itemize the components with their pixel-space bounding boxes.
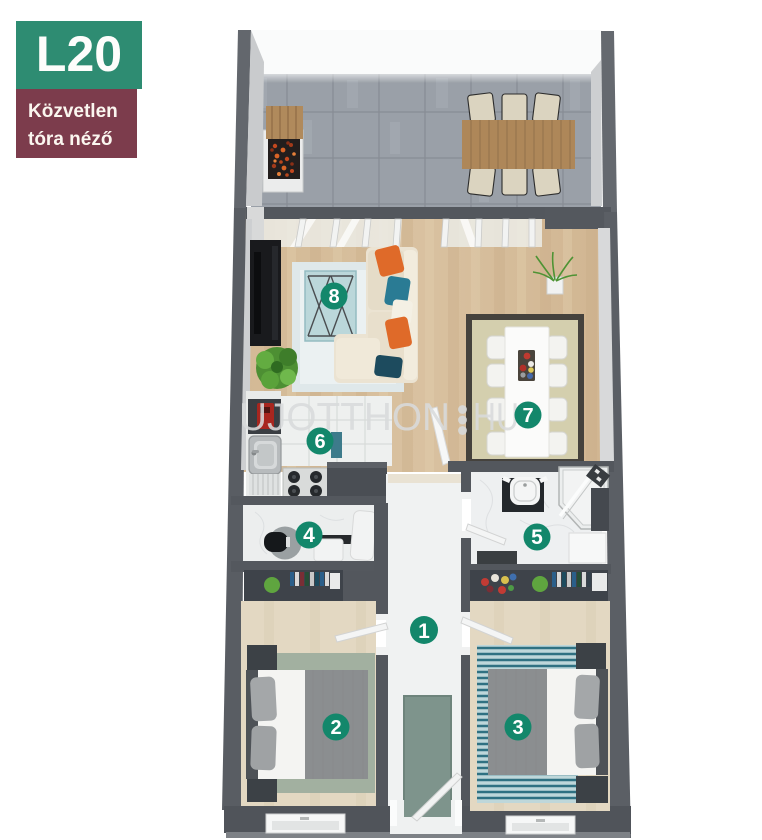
svg-text:4: 4 [303,524,315,547]
svg-text:3: 3 [512,717,523,739]
svg-text:tóra néző: tóra néző [28,129,112,150]
svg-text:7: 7 [522,405,533,427]
svg-text:Közvetlen: Közvetlen [28,101,118,122]
svg-text:UJOTTHON: UJOTTHON [239,396,450,439]
svg-text:L20: L20 [36,26,122,82]
svg-text:HU: HU [473,396,519,439]
svg-text:5: 5 [531,526,543,549]
svg-text:8: 8 [328,286,339,308]
svg-text:2: 2 [330,717,341,739]
svg-text:1: 1 [418,620,430,643]
svg-text:6: 6 [314,431,325,453]
